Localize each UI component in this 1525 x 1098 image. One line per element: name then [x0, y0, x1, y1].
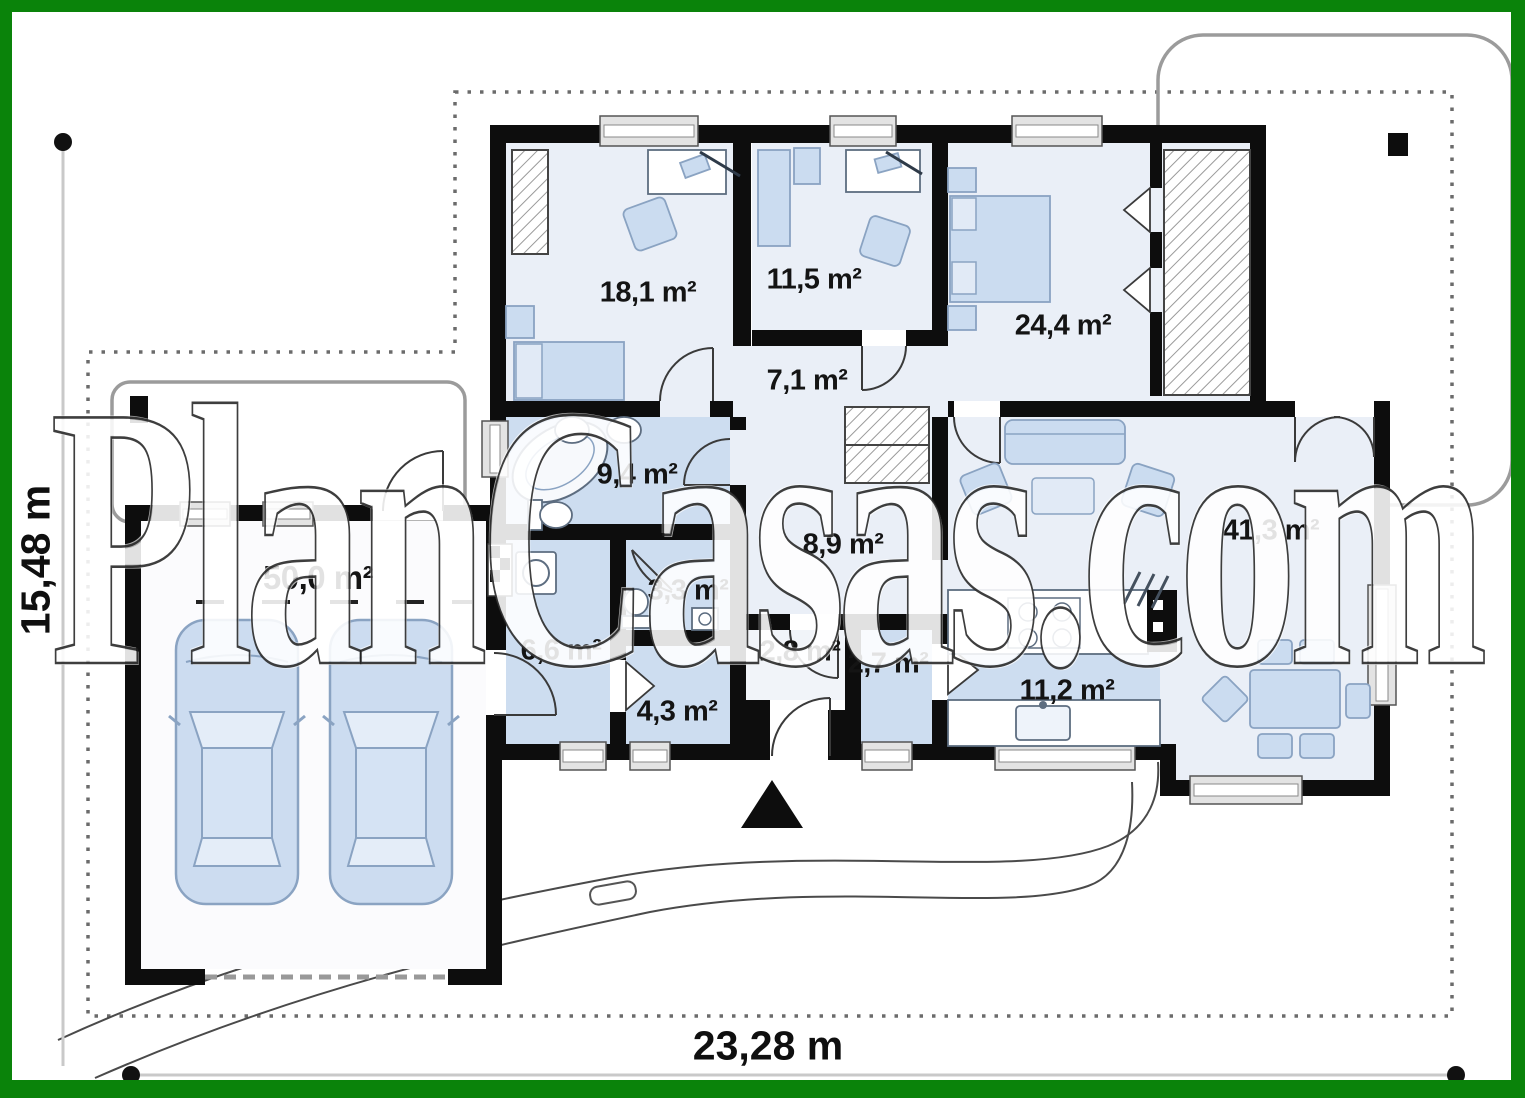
room-area-label-pantry: 2,7 m² — [848, 648, 929, 681]
dimension-dot — [54, 133, 72, 151]
room-area-label-garage: 50,0 m² — [263, 559, 373, 597]
chair — [1258, 640, 1292, 664]
green-frame-top — [0, 0, 1525, 12]
room-area-label-closet: 4,3 m² — [637, 696, 718, 729]
cabinet — [794, 148, 820, 184]
chair — [1300, 734, 1334, 758]
window — [180, 502, 230, 526]
window — [830, 116, 896, 146]
window — [560, 742, 606, 770]
dimension-width-label: 23,28 m — [693, 1023, 843, 1070]
chair — [1258, 734, 1292, 758]
burner — [1019, 629, 1037, 647]
window — [1190, 776, 1302, 804]
wardrobe-hatched — [1164, 150, 1250, 395]
burner — [1053, 603, 1071, 621]
coffee-table — [1032, 478, 1094, 514]
door-arc-porch — [383, 451, 443, 511]
small-sink — [692, 608, 718, 630]
room-area-label-toilet: 3,3 m² — [648, 575, 729, 608]
room-area-label-garage-hall: 6,6 m² — [521, 635, 602, 668]
dimension-height-label: 15,48 m — [13, 485, 60, 635]
kitchen-counter — [948, 590, 1148, 654]
room-area-label-bedroom-1: 18,1 m² — [600, 277, 696, 310]
burner — [1053, 629, 1071, 647]
room-area-label-vestibule: 2,8 m² — [760, 636, 841, 669]
dining-table — [1250, 670, 1340, 728]
driveway-step — [589, 880, 637, 906]
window — [1012, 116, 1102, 146]
nightstand — [948, 168, 976, 192]
kitchen-sink — [1016, 706, 1070, 740]
toilet — [540, 502, 572, 528]
sink — [607, 417, 641, 443]
pillow — [952, 262, 976, 294]
room-area-label-bedroom-2: 11,5 m² — [767, 264, 862, 297]
room-area-label-living-room: 41,3 m² — [1223, 515, 1319, 548]
window — [482, 421, 508, 477]
room-area-label-kitchen: 11,2 m² — [1020, 675, 1115, 708]
green-frame-left — [0, 0, 12, 1098]
green-frame-right — [1511, 0, 1525, 1098]
chair — [1300, 640, 1334, 664]
porch-pillar — [130, 396, 148, 423]
sink — [555, 417, 589, 443]
floor-plan-drawing — [0, 0, 1525, 1098]
room-area-label-hall: 7,1 m² — [767, 365, 848, 398]
window — [600, 116, 698, 146]
door-arc-entrance — [772, 698, 830, 756]
porch-outline — [112, 382, 465, 522]
room-area-label-master-bedroom: 24,4 m² — [1015, 310, 1111, 343]
entrance-arrow — [741, 780, 803, 828]
window — [1368, 585, 1396, 705]
window — [263, 502, 313, 526]
toilet-tank — [622, 616, 650, 628]
wardrobe — [758, 150, 790, 246]
pillow — [516, 344, 542, 398]
kitchen-flue — [1147, 590, 1177, 652]
burner — [1019, 603, 1037, 621]
pillow — [952, 198, 976, 230]
terrace-pillar — [1388, 133, 1408, 156]
green-frame-bottom — [0, 1080, 1525, 1098]
window — [630, 742, 670, 770]
nightstand — [948, 306, 976, 330]
wardrobe-hatched — [512, 150, 548, 254]
sofa — [1005, 420, 1125, 464]
window — [862, 742, 912, 770]
chair — [1346, 684, 1370, 718]
room-area-label-corridor: 8,9 m² — [803, 529, 884, 562]
room-area-label-bathroom: 9,4 m² — [597, 459, 678, 492]
toilet — [624, 589, 648, 615]
nightstand — [506, 306, 534, 338]
floor-plan-screenshot: 18,1 m² 11,5 m² 24,4 m² 7,1 m² 9,4 m² 8,… — [0, 0, 1525, 1098]
